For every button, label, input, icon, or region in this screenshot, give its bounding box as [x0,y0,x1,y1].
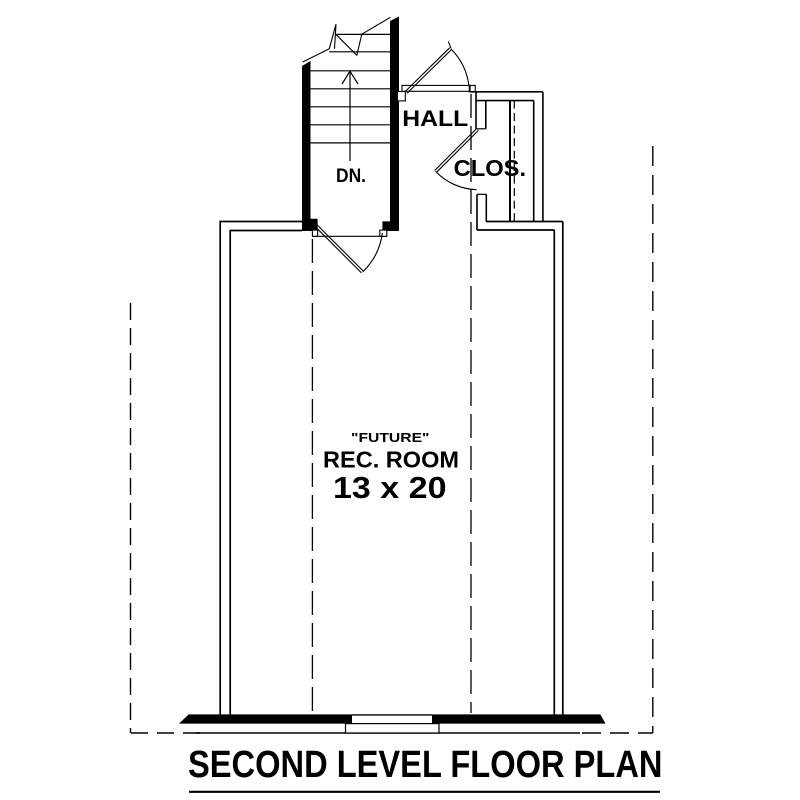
svg-text:REC. ROOM: REC. ROOM [323,446,459,472]
svg-text:SECOND LEVEL FLOOR PLAN: SECOND LEVEL FLOOR PLAN [188,744,663,786]
svg-text:HALL: HALL [402,106,468,131]
svg-text:"FUTURE": "FUTURE" [351,430,430,445]
svg-text:DN.: DN. [336,166,366,187]
svg-text:13 x 20: 13 x 20 [333,470,447,505]
svg-text:CLOS.: CLOS. [454,155,526,181]
